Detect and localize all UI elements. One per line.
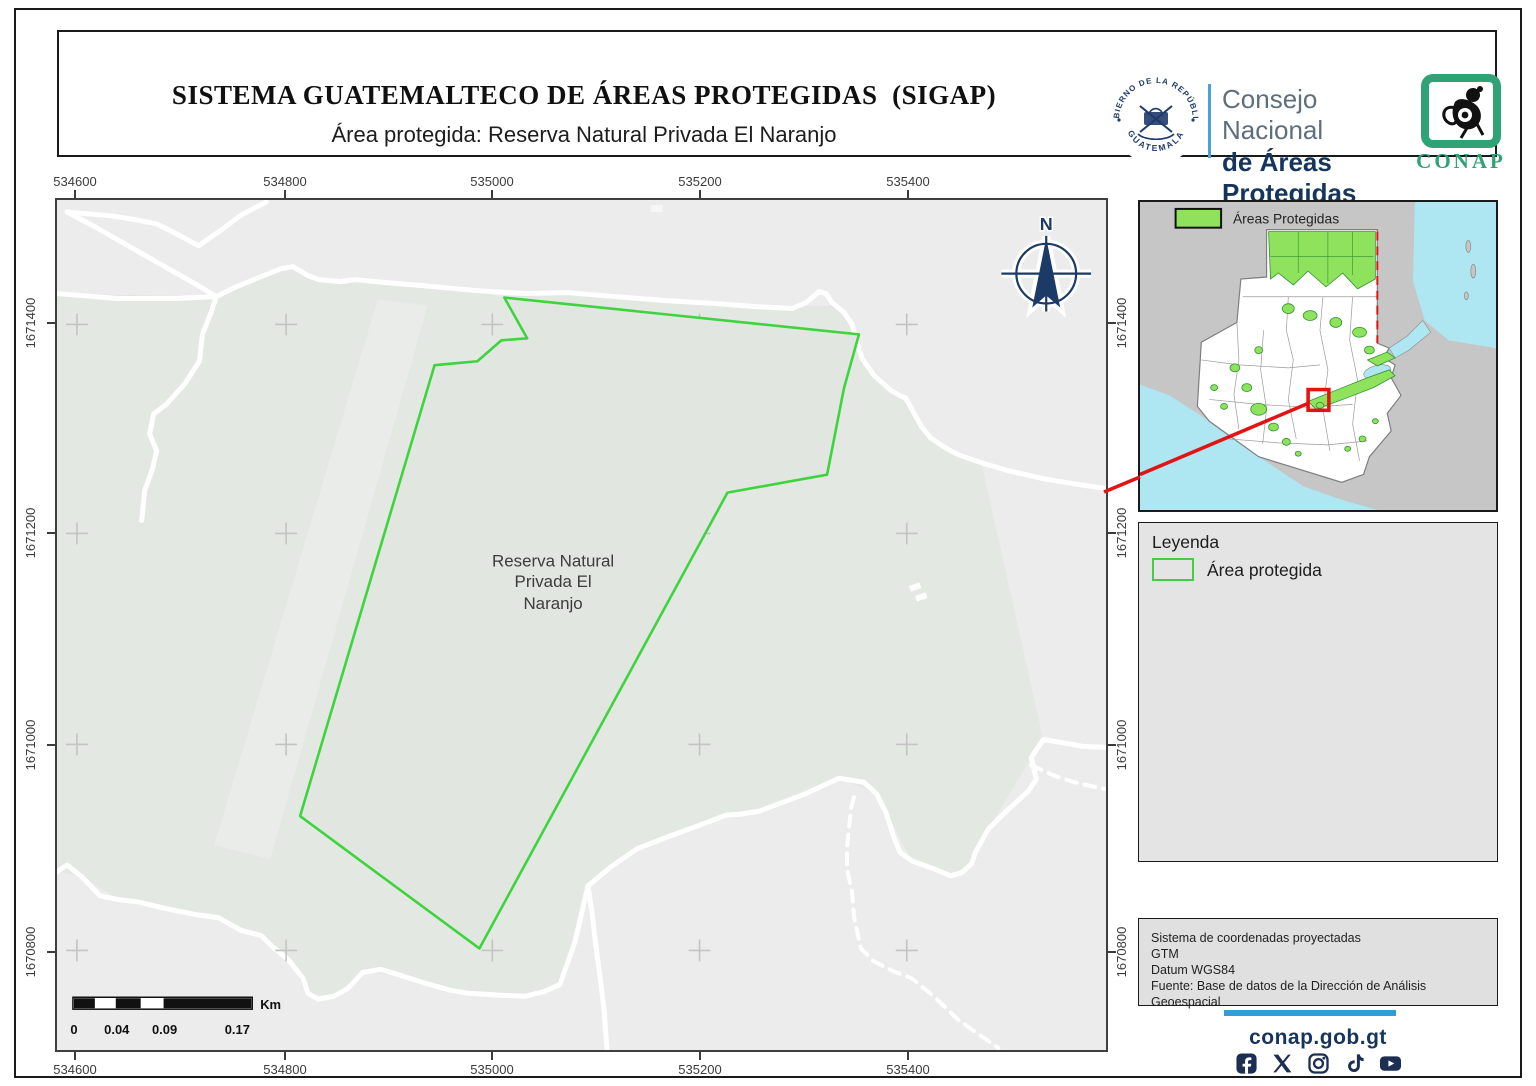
svg-text:0.04: 0.04 bbox=[104, 1022, 130, 1037]
axis-tick bbox=[47, 744, 55, 746]
y-axis-label: 1670800 bbox=[23, 912, 39, 992]
info-line: GTM bbox=[1151, 946, 1485, 962]
org-name-line1: Consejo Nacional bbox=[1222, 84, 1412, 146]
main-map-canvas: Reserva Natural Privada El Naranjo N bbox=[57, 200, 1106, 1050]
x-axis-label: 535000 bbox=[452, 1062, 532, 1078]
social-icons bbox=[1138, 1051, 1498, 1075]
svg-text:0: 0 bbox=[70, 1022, 77, 1037]
y-axis-label: 1671400 bbox=[23, 283, 39, 363]
projection-info-panel: Sistema de coordenadas proyectadas GTM D… bbox=[1138, 918, 1498, 1006]
axis-tick bbox=[284, 190, 286, 198]
sigap-map-page: SISTEMA GUATEMALTECO DE ÁREAS PROTEGIDAS… bbox=[0, 0, 1536, 1086]
x-axis-label: 534600 bbox=[35, 174, 115, 190]
x-axis-label: 535400 bbox=[868, 174, 948, 190]
x-axis-label: 535400 bbox=[868, 1062, 948, 1078]
x-axis-label: 535200 bbox=[660, 1062, 740, 1078]
axis-tick bbox=[74, 1052, 76, 1060]
conap-logo: CONAP bbox=[1413, 72, 1509, 174]
legend-title: Leyenda bbox=[1152, 532, 1219, 553]
protected-area-swatch bbox=[1152, 558, 1194, 581]
y-axis-label: 1670800 bbox=[1114, 912, 1130, 992]
svg-text:Reserva Natural: Reserva Natural bbox=[492, 551, 614, 570]
axis-tick bbox=[47, 532, 55, 534]
x-icon[interactable] bbox=[1271, 1052, 1294, 1075]
footer-accent-bar bbox=[1224, 1010, 1396, 1016]
header: SISTEMA GUATEMALTECO DE ÁREAS PROTEGIDAS… bbox=[57, 30, 1497, 157]
axis-tick bbox=[284, 1052, 286, 1060]
svg-text:0.09: 0.09 bbox=[152, 1022, 177, 1037]
svg-text:Naranjo: Naranjo bbox=[523, 594, 582, 613]
y-axis-label: 1671200 bbox=[1114, 493, 1130, 573]
svg-text:N: N bbox=[1040, 214, 1053, 234]
axis-tick bbox=[699, 1052, 701, 1060]
website-link[interactable]: conap.gob.gt bbox=[1138, 1026, 1498, 1050]
logo-divider bbox=[1208, 84, 1211, 158]
x-axis-label: 534800 bbox=[245, 1062, 325, 1078]
axis-tick bbox=[699, 190, 701, 198]
x-axis-label: 535000 bbox=[452, 174, 532, 190]
overview-inset-map: Áreas Protegidas bbox=[1138, 200, 1498, 512]
x-axis-label: 535200 bbox=[660, 174, 740, 190]
svg-text:Privada El: Privada El bbox=[515, 572, 592, 591]
legend-item-label: Área protegida bbox=[1207, 560, 1322, 581]
axis-tick bbox=[74, 190, 76, 198]
axis-tick bbox=[47, 322, 55, 324]
page-subtitle: Área protegida: Reserva Natural Privada … bbox=[119, 122, 1049, 148]
youtube-icon[interactable] bbox=[1379, 1052, 1402, 1075]
main-map: Reserva Natural Privada El Naranjo N bbox=[55, 198, 1108, 1052]
y-axis-label: 1671000 bbox=[1114, 705, 1130, 785]
page-title: SISTEMA GUATEMALTECO DE ÁREAS PROTEGIDAS… bbox=[119, 80, 1049, 111]
svg-text:Km: Km bbox=[260, 997, 281, 1012]
info-line: Datum WGS84 bbox=[1151, 962, 1485, 978]
axis-tick bbox=[491, 1052, 493, 1060]
info-line: Sistema de coordenadas proyectadas bbox=[1151, 930, 1485, 946]
y-axis-label: 1671000 bbox=[23, 705, 39, 785]
small-structure bbox=[651, 205, 663, 212]
info-line: Fuente: Base de datos de la Dirección de… bbox=[1151, 978, 1485, 1010]
facebook-icon[interactable] bbox=[1235, 1052, 1258, 1075]
tiktok-icon[interactable] bbox=[1343, 1052, 1366, 1075]
y-axis-label: 1671400 bbox=[1114, 283, 1130, 363]
government-seal-logo: GOBIERNO DE LA REPÚBLICA GUATEMALA bbox=[1110, 74, 1202, 166]
inset-legend-label: Áreas Protegidas bbox=[1233, 211, 1339, 227]
axis-tick bbox=[491, 190, 493, 198]
y-axis-label: 1671200 bbox=[23, 493, 39, 573]
axis-tick bbox=[47, 951, 55, 953]
x-axis-label: 534800 bbox=[245, 174, 325, 190]
legend-panel: Leyenda Área protegida bbox=[1138, 522, 1498, 862]
axis-tick bbox=[907, 1052, 909, 1060]
svg-text:0.17: 0.17 bbox=[225, 1022, 250, 1037]
axis-tick bbox=[907, 190, 909, 198]
x-axis-label: 534600 bbox=[35, 1062, 115, 1078]
svg-text:CONAP: CONAP bbox=[1416, 149, 1506, 173]
inset-legend-swatch bbox=[1176, 209, 1221, 228]
instagram-icon[interactable] bbox=[1307, 1052, 1330, 1075]
